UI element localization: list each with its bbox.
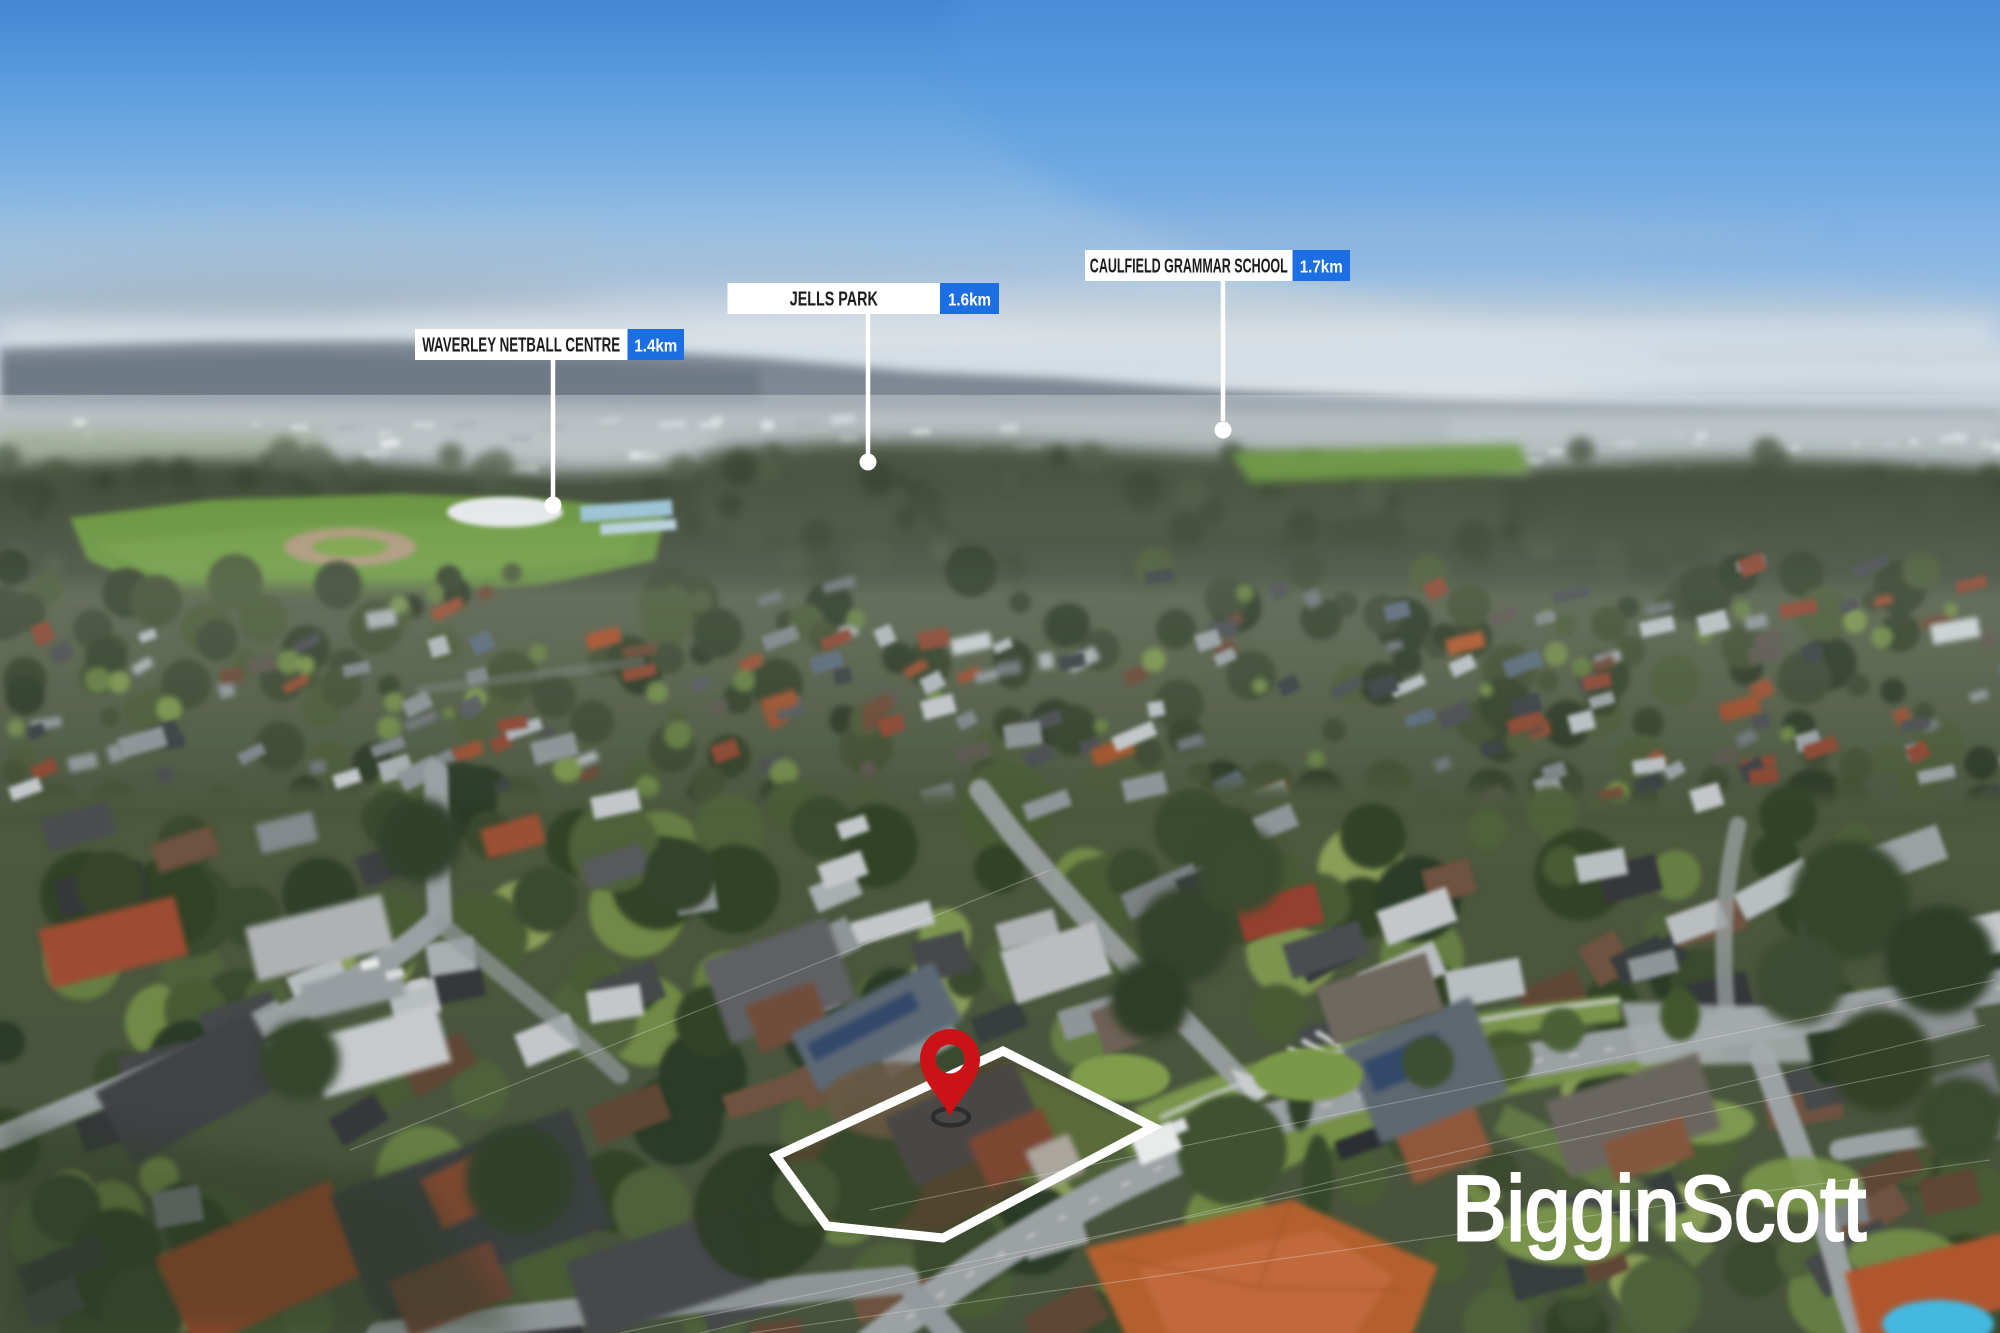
svg-text:WAVERLEY NETBALL CENTRE: WAVERLEY NETBALL CENTRE: [422, 334, 620, 357]
svg-text:1.7km: 1.7km: [1300, 257, 1343, 277]
svg-text:CAULFIELD GRAMMAR SCHOOL: CAULFIELD GRAMMAR SCHOOL: [1090, 255, 1288, 278]
svg-text:1.4km: 1.4km: [634, 336, 677, 356]
svg-text:1.6km: 1.6km: [948, 290, 991, 310]
svg-text:BigginScott: BigginScott: [1452, 1158, 1866, 1260]
svg-text:JELLS PARK: JELLS PARK: [790, 288, 878, 311]
